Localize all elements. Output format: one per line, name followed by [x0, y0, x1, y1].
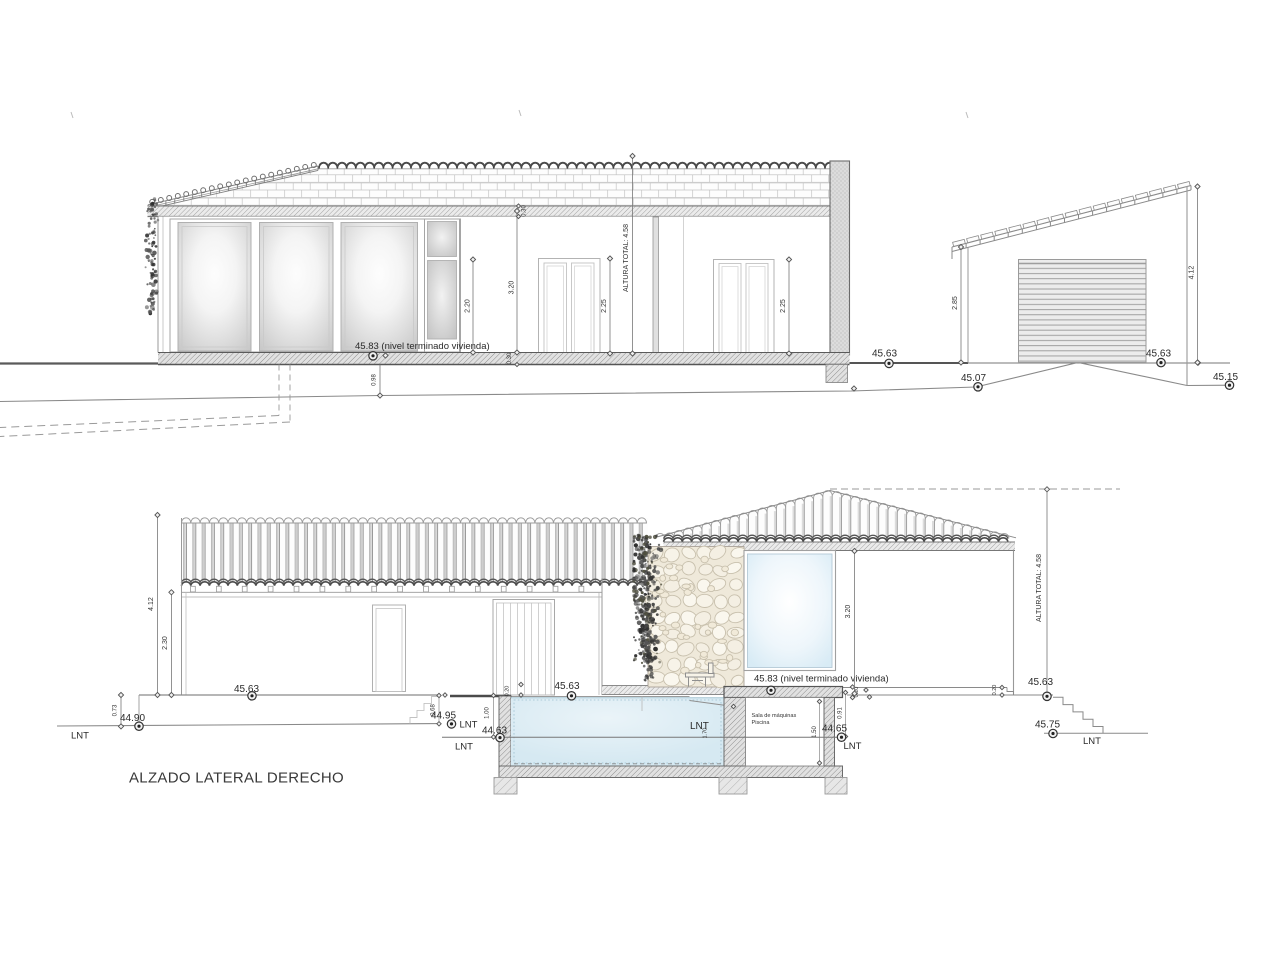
svg-text:45.75: 45.75: [1035, 720, 1060, 731]
svg-text:0.30: 0.30: [522, 205, 528, 217]
svg-text:0.30: 0.30: [507, 352, 513, 364]
svg-text:1.00: 1.00: [485, 707, 491, 719]
svg-text:ALTURA TOTAL: 4.58: ALTURA TOTAL: 4.58: [1036, 554, 1043, 622]
svg-text:45.63: 45.63: [872, 349, 897, 360]
svg-text:0.91: 0.91: [838, 707, 844, 719]
svg-text:ALTURA TOTAL: 4.58: ALTURA TOTAL: 4.58: [623, 224, 630, 292]
svg-text:45.07: 45.07: [961, 373, 986, 384]
svg-text:LNT: LNT: [844, 741, 862, 752]
svg-text:LNT: LNT: [1083, 736, 1101, 747]
svg-text:45.63: 45.63: [1146, 349, 1171, 360]
svg-text:LNT: LNT: [455, 742, 473, 753]
svg-text:0.98: 0.98: [372, 374, 378, 386]
svg-text:0.20: 0.20: [992, 685, 998, 696]
svg-text:45.63: 45.63: [1028, 677, 1053, 688]
svg-text:Piscina: Piscina: [752, 720, 771, 726]
svg-text:0.73: 0.73: [113, 704, 119, 716]
svg-text:1.70: 1.70: [703, 728, 709, 739]
svg-text:3.20: 3.20: [845, 605, 852, 619]
svg-text:LNT: LNT: [460, 720, 478, 731]
svg-text:4.12: 4.12: [148, 597, 155, 611]
svg-text:2.30: 2.30: [162, 636, 169, 650]
svg-text:45.83 (nivel terminado viviend: 45.83 (nivel terminado vivienda): [754, 674, 889, 685]
svg-text:45.63: 45.63: [555, 681, 580, 692]
svg-text:4.12: 4.12: [1189, 266, 1196, 280]
svg-text:2.20: 2.20: [465, 299, 472, 313]
svg-text:Sala de máquinas: Sala de máquinas: [752, 713, 797, 719]
svg-text:2.25: 2.25: [601, 299, 608, 313]
svg-text:0.20: 0.20: [505, 686, 511, 697]
svg-text:3.20: 3.20: [509, 281, 516, 295]
svg-text:45.15: 45.15: [1213, 372, 1238, 383]
svg-text:2.25: 2.25: [780, 299, 787, 313]
svg-text:ALZADO LATERAL DERECHO: ALZADO LATERAL DERECHO: [129, 770, 344, 787]
svg-text:2.85: 2.85: [952, 296, 959, 310]
svg-text:1.50: 1.50: [812, 726, 818, 738]
svg-text:LNT: LNT: [71, 731, 89, 742]
svg-text:44.65: 44.65: [822, 724, 847, 735]
svg-text:45.83 (nivel terminado viviend: 45.83 (nivel terminado vivienda): [355, 341, 490, 352]
